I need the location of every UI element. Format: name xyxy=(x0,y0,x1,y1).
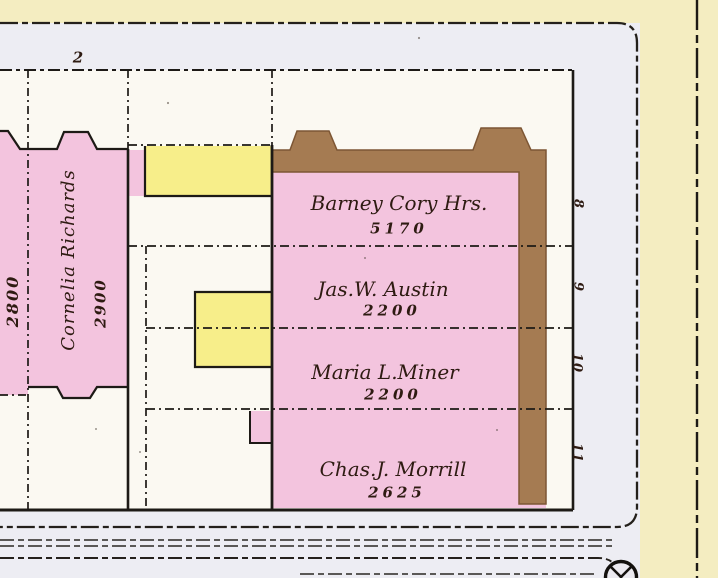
lot-number-11: 11 xyxy=(571,443,584,463)
parcel-value-austin: 2200 xyxy=(363,304,421,319)
parcel-value-barney-cory: 5170 xyxy=(370,222,428,237)
parcel-morrill-tab-fill xyxy=(250,411,272,443)
frame-building-2 xyxy=(195,292,272,367)
parcel-sliver-fill xyxy=(128,150,145,196)
parcel-owner-austin: Jas.W. Austin xyxy=(317,279,448,299)
parcel-owner-miner: Maria L.Miner xyxy=(311,362,458,382)
parcel-cornelia-value-label: 2900 xyxy=(94,278,109,328)
parcel-cornelia-owner-label: Cornelia Richards xyxy=(60,169,78,351)
lot-number-10: 10 xyxy=(571,353,584,373)
survey-monument-icon xyxy=(606,562,637,578)
atlas-map-canvas: 2 2800 Cornelia Richards 2900 Barney Cor… xyxy=(0,0,718,578)
parcel-owner-morrill: Chas.J. Morrill xyxy=(320,459,467,479)
block-number-label: 2 xyxy=(73,51,83,66)
parcel-2800-value-label: 2800 xyxy=(5,275,21,328)
parcel-value-miner: 2200 xyxy=(364,388,422,403)
parcel-owner-barney-cory: Barney Cory Hrs. xyxy=(311,193,488,213)
frame-building-1 xyxy=(145,146,272,196)
parcel-value-morrill: 2625 xyxy=(368,486,426,501)
lot-number-8: 8 xyxy=(572,199,585,209)
lot-number-9: 9 xyxy=(572,282,585,292)
